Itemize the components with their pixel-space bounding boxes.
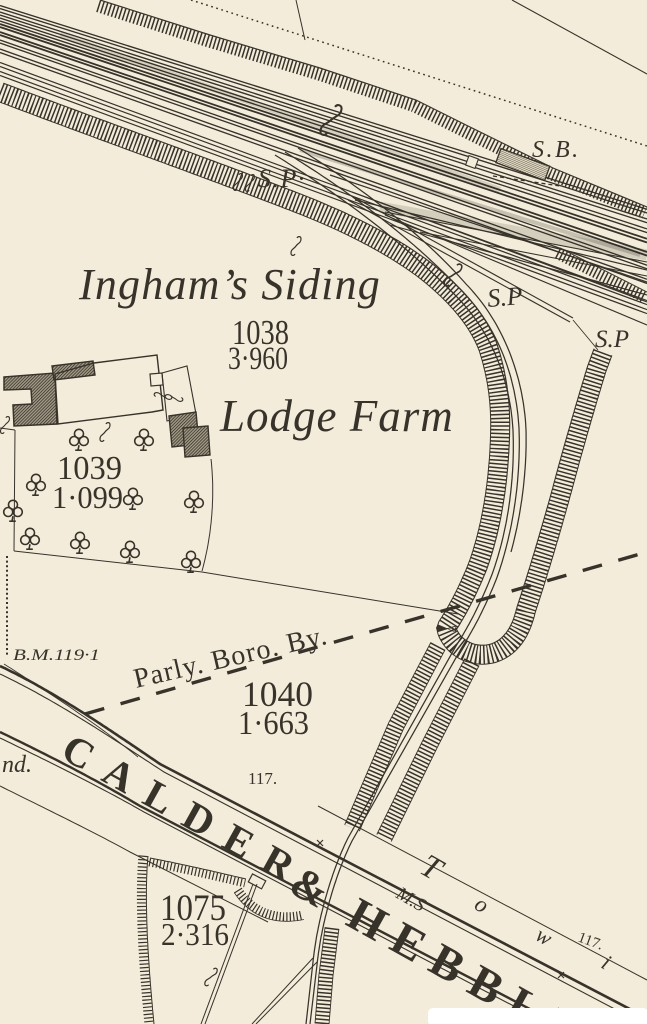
svg-text:2·316: 2·316 (161, 916, 229, 952)
svg-text:3·960: 3·960 (228, 341, 288, 377)
svg-text:117.: 117. (248, 769, 277, 788)
svg-text:S.B.: S.B. (532, 137, 581, 163)
svg-text:B.M.119·1: B.M.119·1 (13, 647, 100, 664)
svg-text:Lodge Farm: Lodge Farm (219, 391, 454, 441)
svg-text:S.P·: S.P· (258, 164, 306, 193)
svg-text:1·099: 1·099 (52, 479, 123, 515)
svg-text:S.P: S.P (595, 326, 629, 353)
svg-text:S.P: S.P (486, 281, 524, 313)
svg-text:Ingham’s Siding: Ingham’s Siding (78, 260, 381, 309)
svg-text:1·663: 1·663 (238, 705, 309, 742)
svg-text:nd.: nd. (2, 752, 32, 778)
